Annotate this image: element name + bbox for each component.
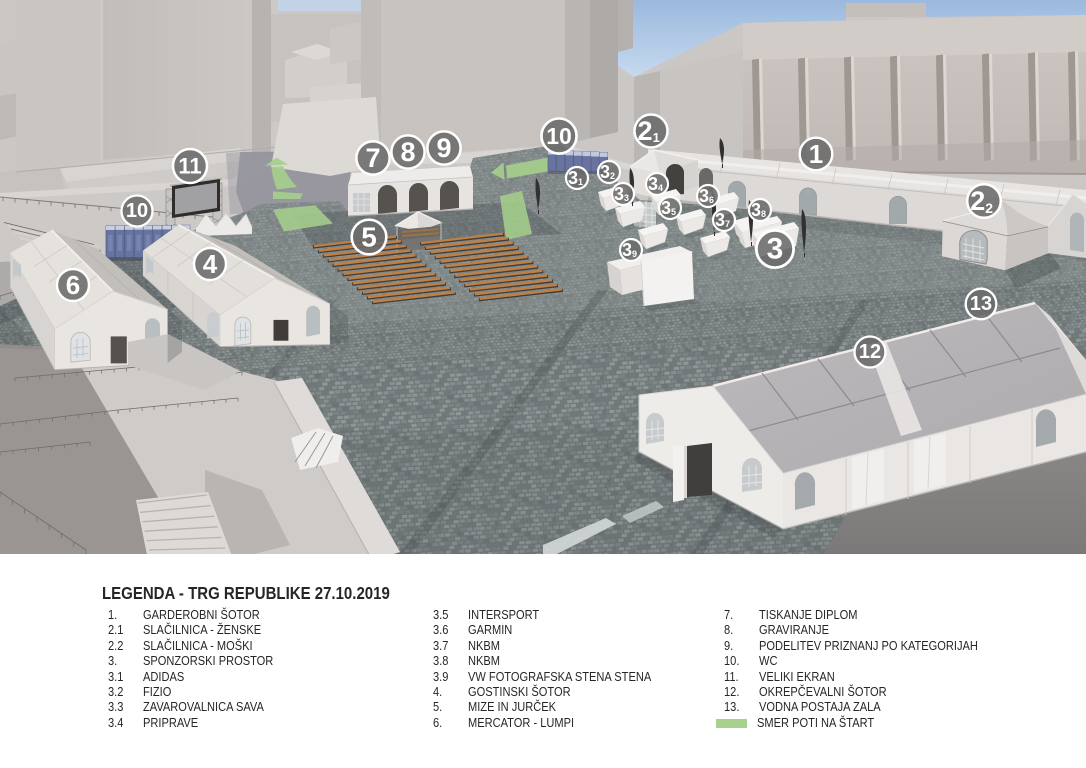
svg-text:1: 1	[809, 139, 823, 169]
svg-text:5: 5	[361, 222, 377, 253]
svg-text:12: 12	[859, 341, 881, 363]
svg-text:3: 3	[767, 233, 784, 266]
svg-text:4: 4	[203, 249, 218, 279]
svg-text:6: 6	[66, 270, 80, 300]
svg-text:13: 13	[970, 293, 992, 315]
svg-text:10: 10	[546, 123, 572, 149]
svg-text:7: 7	[365, 143, 380, 173]
svg-text:9: 9	[436, 133, 451, 163]
svg-text:11: 11	[178, 154, 201, 179]
svg-text:10: 10	[126, 200, 148, 222]
svg-text:8: 8	[400, 137, 415, 167]
